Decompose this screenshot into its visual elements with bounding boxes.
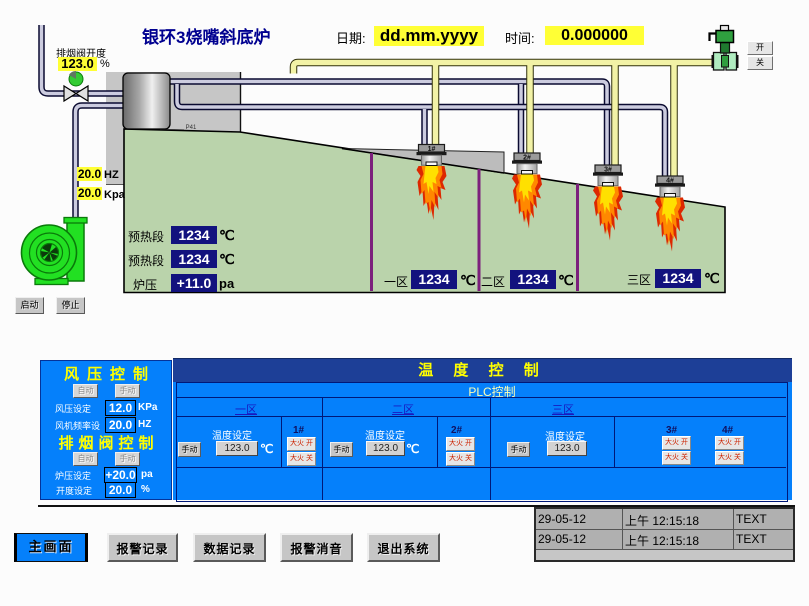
svg-text:1#: 1#	[428, 146, 436, 153]
svg-text:3#: 3#	[604, 167, 612, 174]
svg-text:2#: 2#	[523, 155, 531, 162]
svg-text:4#: 4#	[666, 178, 674, 185]
